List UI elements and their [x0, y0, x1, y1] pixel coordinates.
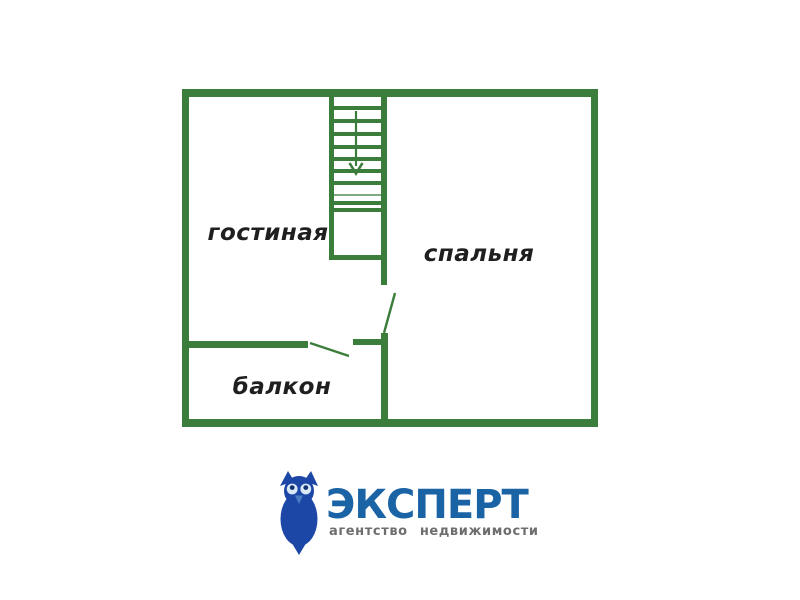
plan-lines	[0, 0, 800, 600]
bedroom-door-leaf	[384, 293, 395, 333]
room-label-balcony: балкон	[233, 374, 332, 400]
room-label-bedroom: спальня	[424, 241, 535, 267]
balcony-door-leaf	[310, 343, 349, 356]
screenshot-canvas: гостиная спальня балкон ЭКСПЕРТ агентств…	[0, 0, 800, 600]
room-label-living: гостиная	[207, 220, 328, 246]
